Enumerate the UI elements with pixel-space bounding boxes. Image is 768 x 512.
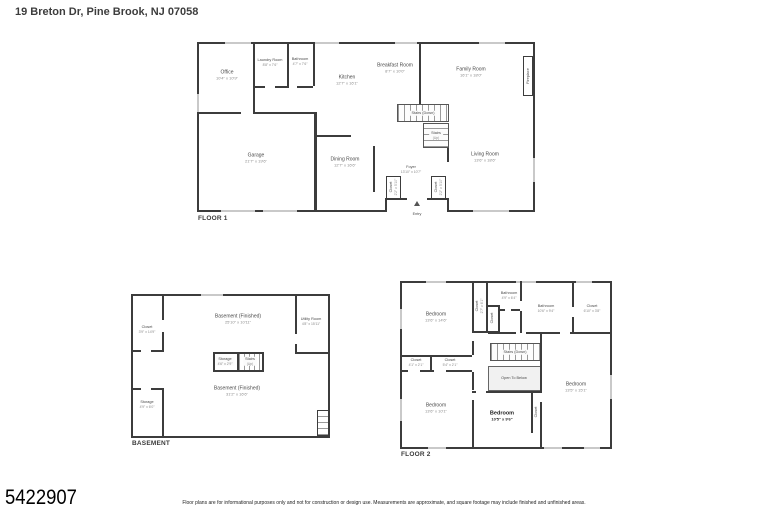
- wall-segment: [131, 294, 133, 438]
- floor-plan-page: { "page": { "title": "19 Breton Dr, Pine…: [0, 0, 768, 512]
- wall-segment: [253, 42, 255, 114]
- storage-label: Storage4'6" x 2'9": [216, 357, 235, 366]
- wall-segment: [488, 332, 516, 334]
- wall-segment: [526, 332, 560, 334]
- wall-segment: [313, 42, 315, 86]
- disclaimer-text: Floor plans are for informational purpos…: [182, 500, 585, 506]
- floor1-plan: FLOOR 1 Office10'4" x 10'9"Laundry Room8…: [197, 42, 535, 212]
- window-segment: [225, 42, 251, 44]
- wall-segment: [197, 42, 199, 212]
- window-segment: [426, 281, 446, 283]
- listing-number: 5422907: [5, 486, 77, 510]
- bathroom-label: Bathroom10'6" x 9'4": [538, 304, 555, 313]
- closet-label: Closet5'4" x 2'1": [443, 358, 458, 367]
- closet-label: Closet2'2" x 5'10": [434, 179, 443, 196]
- window-segment: [313, 42, 339, 44]
- wall-segment: [253, 112, 317, 114]
- stairs-label: Stairs(Up): [429, 131, 443, 140]
- office-label: Office10'4" x 10'9": [216, 70, 238, 81]
- closet-label: Closet6'10" x 3'8": [584, 304, 601, 313]
- wall-segment: [520, 281, 522, 301]
- wall-segment: [131, 436, 330, 438]
- wall-segment: [486, 391, 542, 393]
- breakfast-room-label: Breakfast Room8'7" x 10'0": [377, 63, 413, 74]
- window-segment: [197, 94, 199, 112]
- wall-segment: [275, 86, 289, 88]
- bedroom-label: Bedroom13'6" x 14'6": [425, 312, 447, 323]
- bathroom-label: Bathroom4'9" x 6'4": [501, 291, 517, 300]
- wall-segment: [500, 309, 505, 311]
- closet-label: Closet: [490, 313, 495, 324]
- wall-segment: [373, 146, 375, 192]
- garage-label: Garage21'7" x 19'6": [245, 153, 267, 164]
- closet-label: Closet4'1" x 2'1": [409, 358, 424, 367]
- wall-segment: [297, 86, 313, 88]
- window-segment: [610, 375, 612, 399]
- window-segment: [533, 158, 535, 182]
- window-segment: [428, 447, 446, 449]
- wall-segment: [400, 355, 472, 357]
- window-segment: [400, 399, 402, 421]
- wall-segment: [151, 350, 164, 352]
- wall-segment: [430, 355, 432, 370]
- wall-segment: [447, 198, 449, 212]
- wall-segment: [472, 391, 476, 393]
- floor2-plan: FLOOR 2 Bedroom13'6" x 14'6"Closet2'7" x…: [400, 281, 612, 449]
- wall-segment: [400, 281, 402, 449]
- basement-finished-label: Basement (Finished)25'10" x 10'11": [215, 314, 261, 325]
- window-segment: [516, 281, 536, 283]
- window-segment: [201, 294, 223, 296]
- wall-segment: [572, 281, 574, 307]
- wall-segment: [540, 402, 542, 447]
- family-room-label: Family Room16'1" x 18'0": [456, 67, 485, 78]
- wall-segment: [133, 350, 141, 352]
- floor2-label: FLOOR 2: [401, 451, 431, 458]
- laundry-room-label: Laundry Room8'8" x 7'6": [258, 58, 283, 67]
- basement-label: BASEMENT: [132, 440, 170, 447]
- bedroom-label: Bedroom13'6" x 10'1": [425, 403, 447, 414]
- wall-segment: [262, 352, 264, 372]
- window-segment: [544, 447, 562, 449]
- basement-plan: BASEMENT Closet3'9" x 14'9"Basement (Fin…: [131, 294, 330, 438]
- wall-segment: [131, 294, 330, 296]
- wall-segment: [570, 332, 612, 334]
- wall-segment: [295, 352, 328, 354]
- basement-finished-label: Basement (Finished)31'2" x 16'6": [214, 386, 260, 397]
- wall-segment: [385, 198, 387, 212]
- window-segment: [263, 210, 297, 212]
- wall-segment: [472, 341, 474, 355]
- page-title: 19 Breton Dr, Pine Brook, NJ 07058: [15, 6, 198, 18]
- wall-segment: [162, 294, 164, 320]
- wall-segment: [572, 317, 574, 333]
- bathroom-label: Bathroom4'7" x 7'6": [292, 57, 308, 66]
- bedroom-label: Bedroom10'5" x 9'6": [490, 411, 514, 422]
- wall-segment: [472, 400, 474, 447]
- fireplace-label: Fireplace: [526, 68, 531, 84]
- window-segment: [395, 42, 417, 44]
- stairs-down-label: Stairs (Down): [502, 350, 529, 355]
- closet-label: Closet2'7" x 6'1": [475, 299, 484, 314]
- wall-segment: [162, 332, 164, 352]
- wall-segment: [420, 370, 434, 372]
- closet-label: Closet3'9" x 14'9": [139, 325, 156, 334]
- wall-segment: [511, 309, 520, 311]
- wall-segment: [472, 281, 474, 331]
- kitchen-label: Kitchen12'7" x 16'1": [336, 75, 358, 86]
- wall-segment: [314, 112, 317, 212]
- window-segment: [584, 447, 600, 449]
- wall-segment: [253, 86, 265, 88]
- entry-marker-icon: [414, 201, 420, 206]
- closet-label: Closet2'2" x 5'10": [389, 179, 398, 196]
- storage-label: Storage4'9" x 6'0": [140, 400, 155, 409]
- wall-segment: [317, 135, 351, 137]
- stairs-down-label: Stairs (Down): [410, 111, 437, 116]
- wall-segment: [400, 370, 408, 372]
- living-room-label: Living Room13'6" x 18'6": [471, 152, 499, 163]
- basement-stairwell-box: [317, 410, 329, 436]
- utility-room-label: Utility Room4'8" x 15'11": [301, 317, 321, 326]
- wall-segment: [472, 372, 474, 390]
- bedroom-label: Bedroom13'5" x 15'1": [565, 382, 587, 393]
- window-segment: [221, 210, 255, 212]
- wall-segment: [133, 388, 141, 390]
- wall-segment: [520, 311, 522, 333]
- wall-segment: [446, 370, 472, 372]
- wall-segment: [610, 281, 612, 449]
- wall-segment: [533, 42, 535, 212]
- wall-segment: [197, 112, 241, 114]
- wall-segment: [540, 332, 542, 392]
- window-segment: [479, 42, 505, 44]
- wall-segment: [287, 42, 289, 86]
- stairs-label: Stairs(Up): [243, 357, 257, 366]
- wall-segment: [419, 42, 421, 106]
- window-segment: [576, 281, 592, 283]
- wall-segment: [295, 294, 297, 334]
- wall-segment: [531, 393, 533, 433]
- wall-segment: [162, 388, 164, 436]
- dining-room-label: Dining Room12'7" x 16'6": [331, 157, 360, 168]
- foyer-label: Foyer13'10" x 10'7": [401, 165, 421, 174]
- window-segment: [400, 309, 402, 329]
- entry-label: Entry: [413, 212, 422, 217]
- window-segment: [473, 210, 509, 212]
- open-to-below-label: Open To Below: [501, 376, 527, 381]
- floor1-label: FLOOR 1: [198, 215, 228, 222]
- closet-label: Closet: [534, 407, 539, 418]
